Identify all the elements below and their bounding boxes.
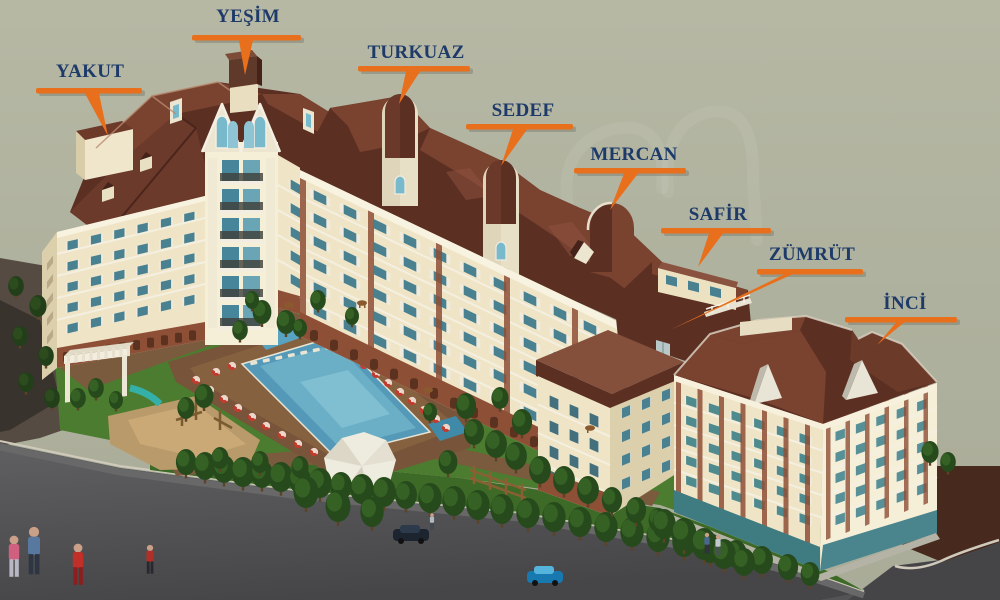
svg-text:İNCİ: İNCİ bbox=[883, 293, 926, 314]
svg-text:SAFİR: SAFİR bbox=[689, 204, 748, 225]
svg-text:ZÜMRÜT: ZÜMRÜT bbox=[769, 244, 855, 265]
svg-text:SEDEF: SEDEF bbox=[492, 100, 555, 121]
svg-text:YAKUT: YAKUT bbox=[56, 61, 124, 82]
svg-text:MERCAN: MERCAN bbox=[590, 144, 677, 165]
svg-text:YEŞİM: YEŞİM bbox=[216, 6, 280, 27]
svg-text:TURKUAZ: TURKUAZ bbox=[367, 42, 464, 63]
